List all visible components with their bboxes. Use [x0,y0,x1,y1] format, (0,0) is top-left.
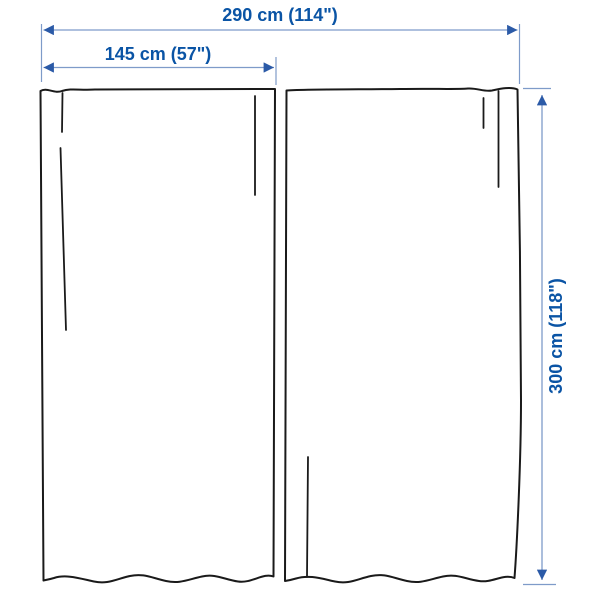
height-label: 300 cm (118") [546,278,566,394]
panel-width-label: 145 cm (57") [105,44,212,64]
curtain-panel-left [41,89,276,582]
dimension-diagram: 290 cm (114") 145 cm (57") 300 cm (118") [0,0,600,600]
total-width-label: 290 cm (114") [222,5,338,25]
diagram-canvas: 290 cm (114") 145 cm (57") 300 cm (118") [0,0,600,600]
curtain-panel-right [285,88,521,582]
